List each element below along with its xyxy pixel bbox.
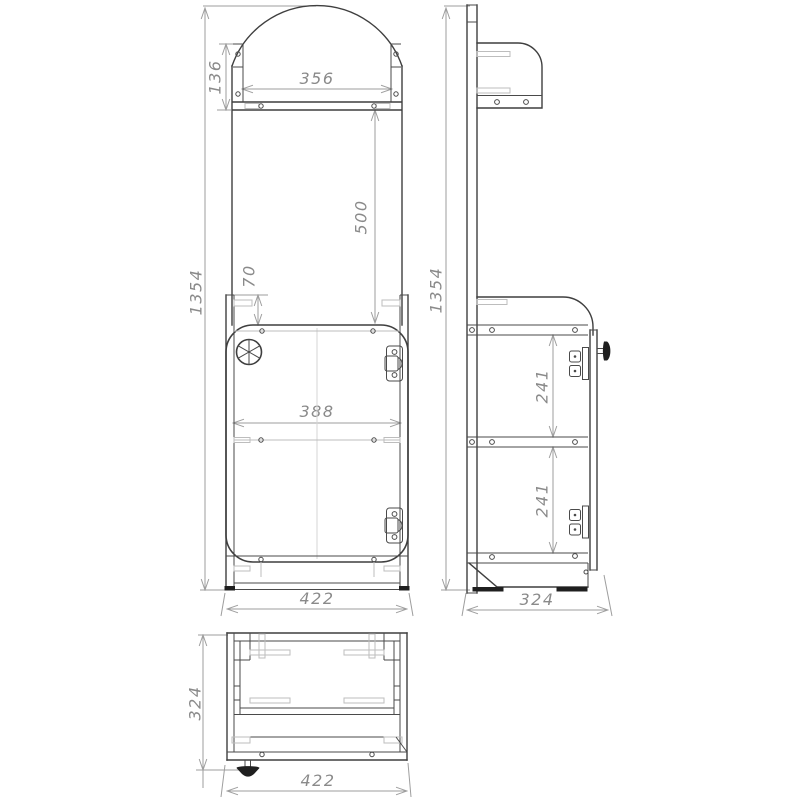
- dim-label-shelf-to-cabinet: 500: [352, 199, 371, 234]
- technical-drawing: 1354 136 356 500 70 388 422: [0, 0, 800, 800]
- dim-label-side-overall-height: 1354: [427, 267, 446, 314]
- base-side: [469, 563, 588, 592]
- back-panel: [467, 5, 477, 593]
- door-edge-side: [584, 330, 597, 574]
- bottom-outer-frame: [227, 633, 407, 760]
- foot-icon-side-right: [557, 587, 588, 592]
- drawing-canvas: 1354 136 356 500 70 388 422: [0, 0, 800, 800]
- side-dimensions: 1354 241 241 324: [427, 6, 613, 616]
- dim-label-cabinet-top-offset: 70: [240, 264, 259, 287]
- cabinet-door: [226, 325, 408, 562]
- bottom-front-rail: [227, 737, 407, 757]
- front-dimensions: 1354 136 356 500 70 388 422: [187, 6, 414, 616]
- hinge-icon-side-bottom: [570, 506, 589, 538]
- side-view: 1354 241 241 324: [427, 5, 613, 616]
- arched-top: [232, 6, 402, 66]
- bottom-view: 324 422: [186, 633, 412, 797]
- bottom-inner-opening: [234, 633, 400, 715]
- dim-label-upper-shelf-spacing: 241: [533, 368, 552, 403]
- dim-label-front-overall-height: 1354: [187, 269, 206, 316]
- dim-label-lower-shelf-spacing: 241: [533, 482, 552, 517]
- base-front: [225, 556, 410, 591]
- cabinet-body-side: [467, 297, 593, 563]
- lock-wheel-icon: [237, 340, 262, 365]
- door-knob-icon-side: [597, 342, 610, 361]
- foot-icon-front-right: [399, 586, 410, 591]
- foot-icon-side-left: [473, 587, 504, 592]
- top-shelf: [233, 102, 401, 110]
- front-view: 1354 136 356 500 70 388 422: [187, 6, 414, 616]
- dim-label-shelf-inner-width: 356: [299, 69, 334, 88]
- dim-label-front-overall-width: 422: [299, 589, 334, 608]
- hinge-icon-side-top: [570, 348, 589, 380]
- dim-label-bottom-overall-width: 422: [300, 771, 335, 790]
- dim-label-bottom-overall-depth: 324: [186, 685, 205, 720]
- dim-label-side-overall-depth: 324: [519, 590, 554, 609]
- bottom-dimensions: 324 422: [186, 635, 412, 797]
- shelf-bracket-side: [477, 43, 542, 108]
- foot-icon-front-left: [225, 586, 236, 591]
- door-knob-icon-bottom: [237, 760, 260, 777]
- dim-label-bracket-height: 136: [206, 59, 225, 94]
